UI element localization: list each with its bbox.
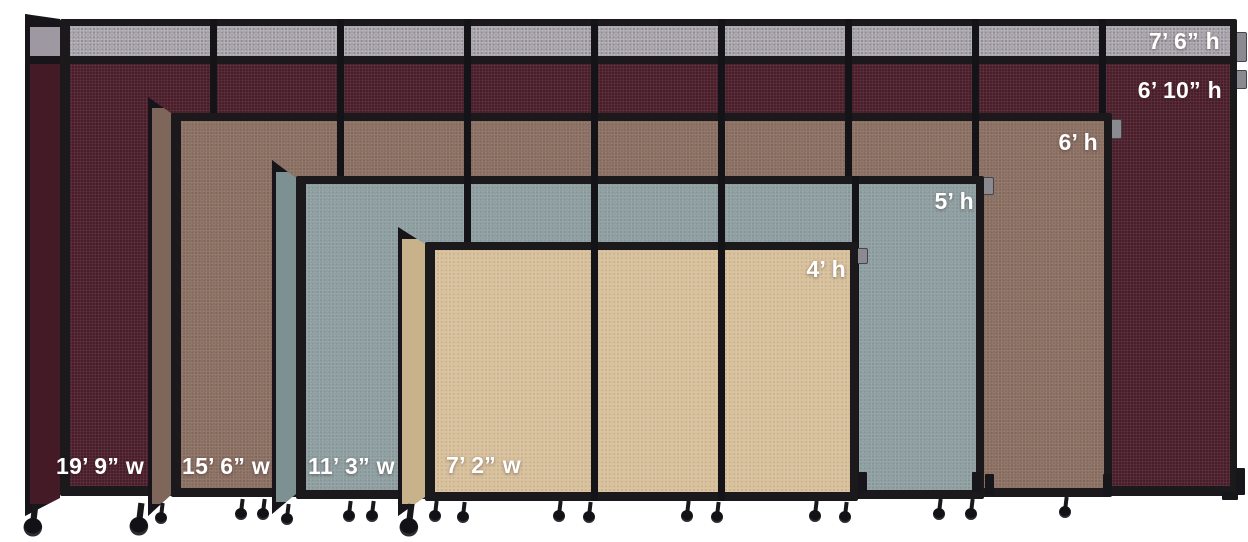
return-panel	[398, 227, 425, 516]
caster	[456, 502, 470, 524]
room-divider-size-comparison-image: 7’ 6” h 6’ 10” h 6’ h 5’ h 4’ h 19’ 9” w…	[0, 0, 1248, 542]
frame-post	[718, 242, 725, 501]
width-label-11ft3: 11’ 3” w	[308, 453, 395, 479]
caster	[808, 501, 822, 523]
height-label-7ft6: 7’ 6” h	[1149, 28, 1220, 54]
wall-bracket	[858, 248, 868, 264]
width-label-19ft9: 19’ 9” w	[56, 453, 144, 479]
height-label-6ft10: 6’ 10” h	[1138, 77, 1222, 103]
height-label-4ft: 4’ h	[806, 256, 846, 282]
frame-post	[591, 242, 598, 501]
caster	[552, 501, 566, 523]
width-label-7ft2: 7’ 2” w	[446, 452, 521, 478]
caster	[680, 501, 694, 523]
caster	[398, 504, 420, 538]
height-label-5ft: 5’ h	[934, 188, 974, 214]
height-label-6ft: 6’ h	[1058, 129, 1098, 155]
caster	[582, 502, 596, 524]
caster	[838, 502, 852, 524]
width-label-15ft6: 15’ 6” w	[182, 453, 270, 479]
caster	[710, 502, 724, 524]
caster	[428, 501, 442, 523]
